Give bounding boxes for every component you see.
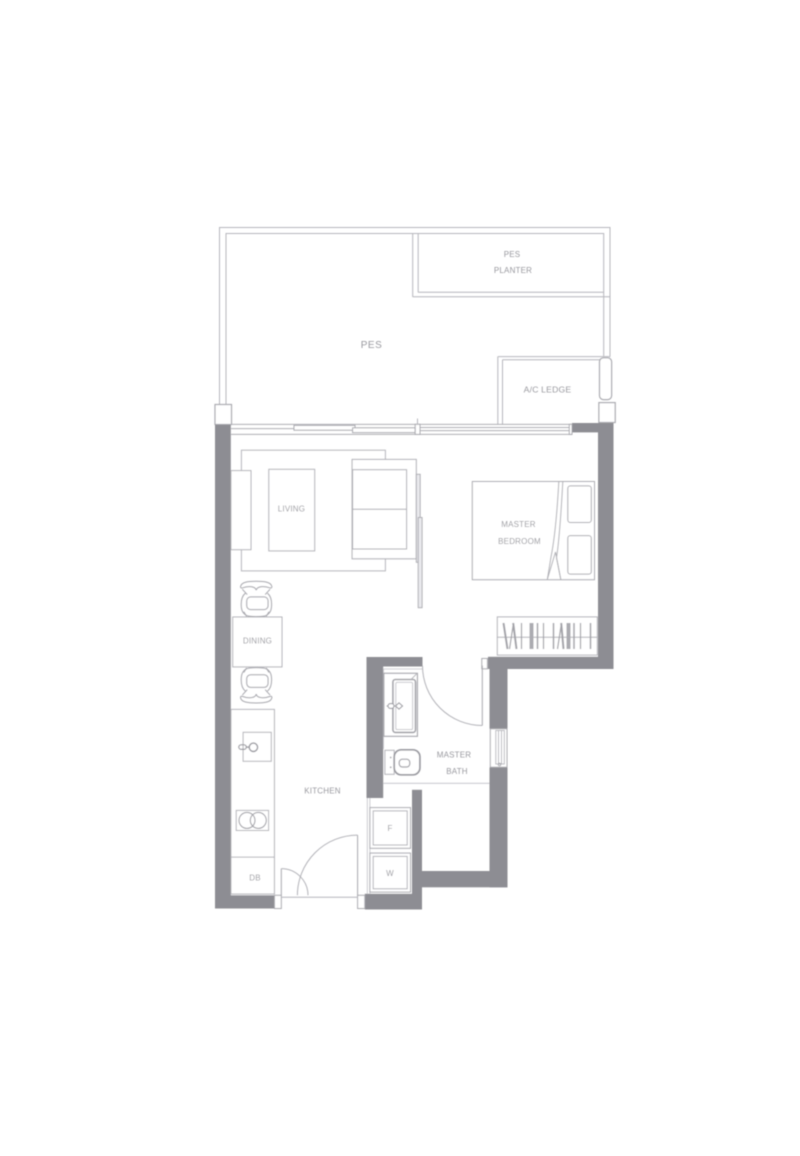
svg-text:LIVING: LIVING [278,505,305,514]
svg-text:DINING: DINING [243,637,272,646]
svg-text:KITCHEN: KITCHEN [304,787,341,796]
svg-text:W: W [386,869,394,878]
svg-text:A/C LEDGE: A/C LEDGE [524,385,572,395]
svg-text:PES: PES [504,250,521,259]
svg-text:BATH: BATH [446,767,468,776]
svg-text:MASTER: MASTER [437,751,472,760]
svg-text:DB: DB [249,874,261,883]
svg-text:PES: PES [361,340,383,351]
svg-text:F: F [387,824,392,833]
svg-text:PLANTER: PLANTER [494,266,532,275]
svg-text:MASTER: MASTER [501,520,536,529]
svg-text:BEDROOM: BEDROOM [498,537,541,546]
